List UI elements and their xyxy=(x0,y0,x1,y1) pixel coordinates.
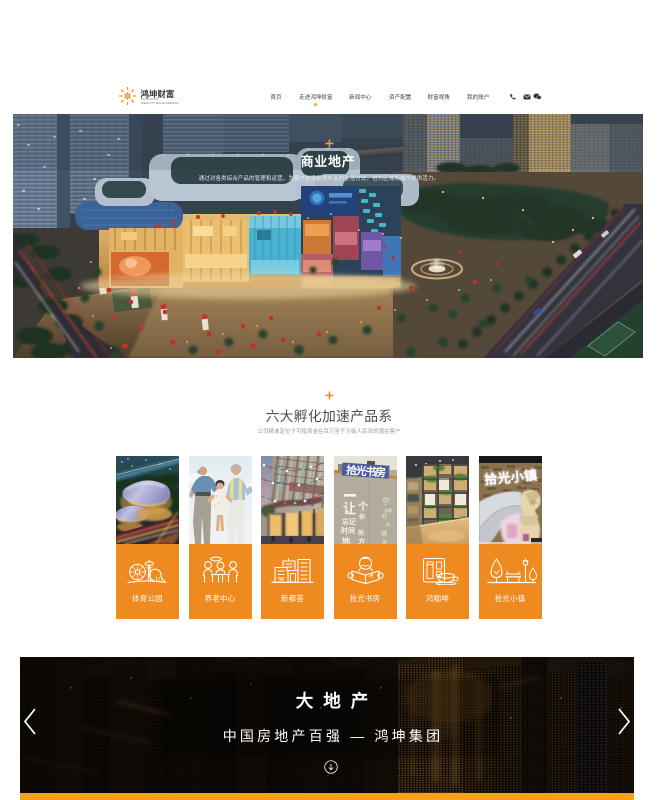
svg-text:让: 让 xyxy=(343,501,356,516)
svg-text:地: 地 xyxy=(342,536,350,544)
svg-text:时间: 时间 xyxy=(341,526,355,535)
svg-text:铺: 铺 xyxy=(381,530,387,538)
svg-text:你: 你 xyxy=(358,513,365,521)
svg-text:时: 时 xyxy=(382,513,387,520)
svg-text:个: 个 xyxy=(357,500,369,513)
svg-text:安静: 安静 xyxy=(384,507,392,513)
svg-text:宁: 宁 xyxy=(382,496,390,506)
svg-text:的: 的 xyxy=(386,521,390,527)
svg-text:忘记: 忘记 xyxy=(342,517,356,526)
svg-text:方: 方 xyxy=(358,537,365,544)
svg-text:的: 的 xyxy=(358,529,364,537)
